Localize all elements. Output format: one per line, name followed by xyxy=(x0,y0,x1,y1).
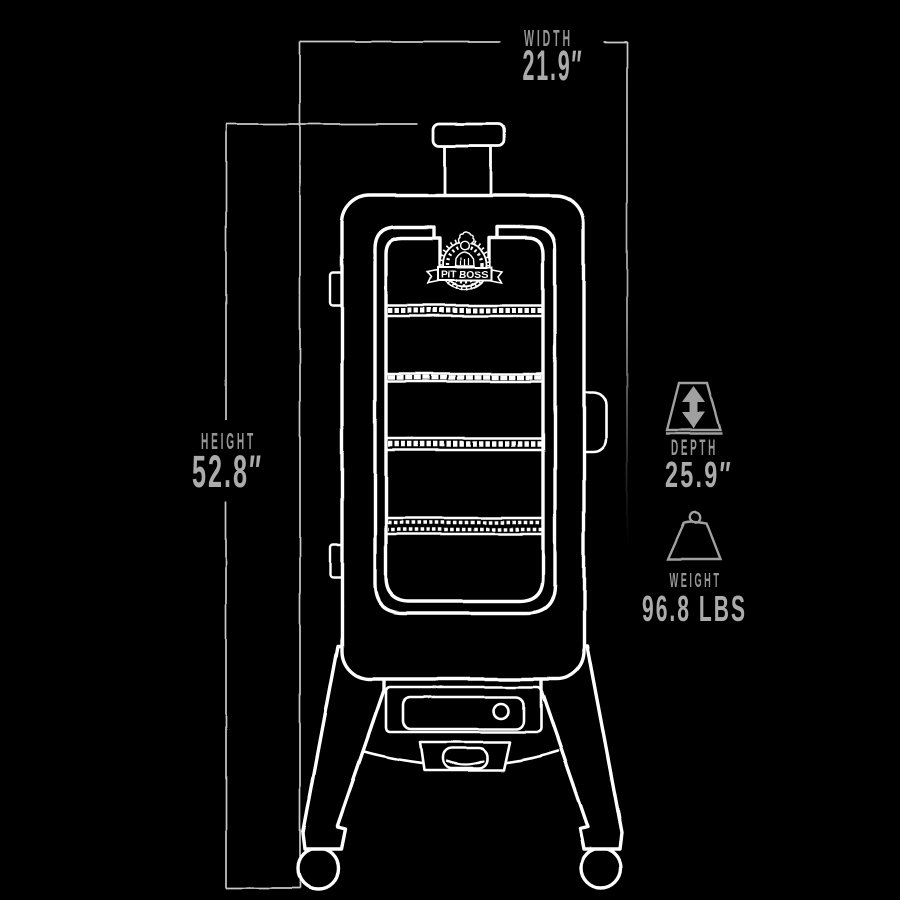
svg-text:PIT BOSS: PIT BOSS xyxy=(441,270,489,281)
svg-text:21.9″: 21.9″ xyxy=(523,43,584,90)
svg-text:52.8″: 52.8″ xyxy=(192,446,263,497)
svg-text:96.8 LBS: 96.8 LBS xyxy=(642,588,747,629)
svg-text:25.9″: 25.9″ xyxy=(665,454,733,495)
